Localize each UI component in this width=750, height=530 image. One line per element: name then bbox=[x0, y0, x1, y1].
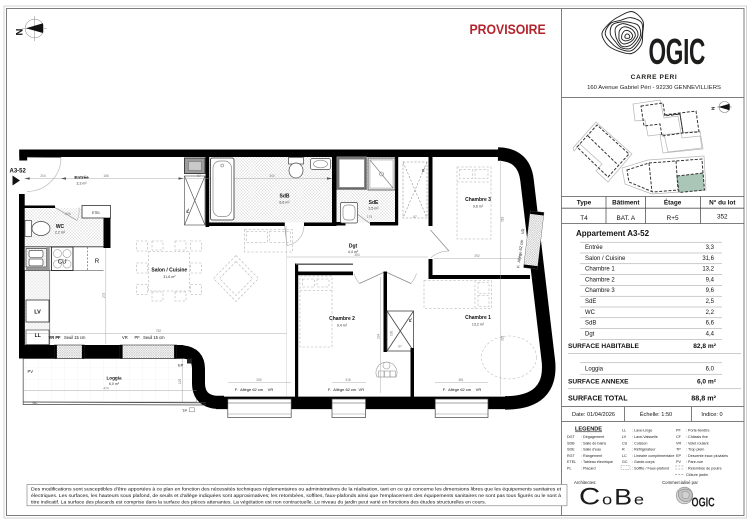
svg-text:F. Allège 62 cm VR: F. Allège 62 cm VR bbox=[235, 387, 274, 392]
svg-text:Type: Type bbox=[577, 200, 592, 207]
svg-text:PV: PV bbox=[28, 369, 34, 374]
svg-text:SDB: SDB bbox=[567, 441, 575, 445]
svg-text:CoBe: CoBe bbox=[579, 484, 646, 511]
svg-text:Chambre 2: Chambre 2 bbox=[585, 277, 615, 283]
svg-text:R+5: R+5 bbox=[667, 215, 679, 222]
svg-text:6,6 m²: 6,6 m² bbox=[279, 201, 290, 205]
svg-text:F. Allège 62 cm VR: F. Allège 62 cm VR bbox=[328, 387, 364, 392]
svg-text:381: 381 bbox=[458, 378, 464, 382]
svg-text:Loggia: Loggia bbox=[106, 376, 122, 381]
svg-text:F. Allège 62 cm VR: F. Allège 62 cm VR bbox=[443, 387, 482, 392]
svg-text:: Rangement: : Rangement bbox=[581, 454, 602, 458]
svg-text:4,4: 4,4 bbox=[706, 331, 715, 337]
svg-text:2,2 m²: 2,2 m² bbox=[55, 231, 66, 235]
svg-text:: Retombée de poutre: : Retombée de poutre bbox=[686, 467, 722, 471]
svg-text:LL: LL bbox=[35, 333, 41, 339]
svg-text:474: 474 bbox=[103, 386, 109, 390]
svg-text:100: 100 bbox=[390, 330, 394, 336]
svg-text:125: 125 bbox=[178, 378, 182, 384]
svg-text:LC: LC bbox=[622, 454, 627, 458]
svg-text:: Lave-Vaisselle: : Lave-Vaisselle bbox=[632, 435, 658, 439]
svg-text:WC: WC bbox=[585, 310, 596, 316]
svg-text:: Châssis fixe: : Châssis fixe bbox=[686, 435, 708, 439]
svg-text:: Pare-vue: : Pare-vue bbox=[686, 460, 703, 464]
svg-text:300: 300 bbox=[269, 174, 275, 178]
svg-text:VR PF Seuil 15 cm: VR PF Seuil 15 cm bbox=[122, 335, 165, 340]
svg-text:R: R bbox=[95, 258, 100, 265]
svg-text:Loggia: Loggia bbox=[585, 367, 604, 373]
svg-text:: Réfrigérateur: : Réfrigérateur bbox=[632, 448, 656, 452]
svg-text:PROVISOIRE: PROVISOIRE bbox=[470, 22, 546, 37]
svg-text:: Porte-fenêtre: : Porte-fenêtre bbox=[686, 429, 710, 433]
svg-text:titre indicatif. La surface de: titre indicatif. La surface des placards… bbox=[31, 500, 486, 506]
svg-text:PF: PF bbox=[676, 429, 681, 433]
svg-text:: Soffite / Faux-plafond: : Soffite / Faux-plafond bbox=[632, 467, 669, 471]
svg-text:RGT: RGT bbox=[567, 454, 576, 458]
svg-text:6,6: 6,6 bbox=[706, 321, 715, 327]
svg-text:352: 352 bbox=[717, 213, 728, 220]
svg-text:A3-52: A3-52 bbox=[10, 169, 27, 175]
svg-text:6,0: 6,0 bbox=[706, 367, 715, 373]
svg-text:Date: 01/04/2026: Date: 01/04/2026 bbox=[572, 412, 615, 418]
svg-text:3,3 m²: 3,3 m² bbox=[76, 182, 87, 186]
svg-text:67: 67 bbox=[197, 174, 201, 178]
svg-text:160 Avenue Gabriel Péri - 9223: 160 Avenue Gabriel Péri - 92230 GENNEVIL… bbox=[587, 85, 721, 91]
svg-text:BAT. A: BAT. A bbox=[616, 215, 635, 222]
svg-text:VR: VR bbox=[676, 441, 681, 445]
svg-text:9,6 m²: 9,6 m² bbox=[473, 205, 484, 209]
svg-text:: Tableau électrique: : Tableau électrique bbox=[581, 460, 613, 464]
svg-text:88,8 m²: 88,8 m² bbox=[691, 394, 716, 403]
svg-text:Chambre 1: Chambre 1 bbox=[465, 315, 491, 321]
svg-text:13,2: 13,2 bbox=[702, 267, 714, 273]
svg-text:Appartement A3-52: Appartement A3-52 bbox=[576, 229, 650, 238]
svg-text:PL: PL bbox=[409, 318, 413, 322]
svg-text:: Descente eaux pluviales: : Descente eaux pluviales bbox=[686, 454, 728, 458]
svg-text:SURFACE HABITABLE: SURFACE HABITABLE bbox=[568, 343, 640, 350]
svg-text:166: 166 bbox=[103, 174, 109, 178]
svg-text:Salon / Cuisine: Salon / Cuisine bbox=[585, 256, 626, 262]
svg-text:PV: PV bbox=[676, 460, 681, 464]
svg-text:Chambre 3: Chambre 3 bbox=[585, 288, 615, 294]
svg-text:9,4: 9,4 bbox=[706, 277, 715, 283]
svg-text:: Salle de bains: : Salle de bains bbox=[581, 441, 606, 445]
svg-text:175: 175 bbox=[367, 215, 373, 219]
svg-text:OGIC: OGIC bbox=[692, 496, 715, 510]
svg-text:318: 318 bbox=[501, 216, 505, 222]
svg-text:2,5: 2,5 bbox=[706, 299, 715, 305]
svg-text:PL: PL bbox=[567, 467, 572, 471]
svg-text:SDE: SDE bbox=[567, 448, 575, 452]
svg-text:: Dégagement: : Dégagement bbox=[581, 435, 604, 439]
svg-text:Entrée: Entrée bbox=[74, 175, 89, 180]
svg-text:328: 328 bbox=[501, 335, 505, 341]
svg-text:T4: T4 bbox=[580, 215, 588, 222]
svg-text:250: 250 bbox=[256, 378, 262, 382]
svg-text:N: N bbox=[711, 107, 716, 110]
svg-text:31,6: 31,6 bbox=[702, 256, 714, 262]
svg-text:N: N bbox=[15, 29, 26, 36]
svg-text:13,2 m²: 13,2 m² bbox=[472, 323, 485, 327]
svg-text:Dgt: Dgt bbox=[349, 244, 358, 250]
svg-text:PL: PL bbox=[186, 208, 190, 213]
svg-text:CU: CU bbox=[622, 441, 628, 445]
svg-text:VR PF Seuil 15 cm: VR PF Seuil 15 cm bbox=[49, 335, 86, 340]
svg-text:SdE: SdE bbox=[585, 299, 596, 305]
svg-text:WC: WC bbox=[56, 224, 65, 230]
svg-text:Commercialisé par: Commercialisé par bbox=[662, 480, 698, 485]
svg-text:SURFACE TOTAL: SURFACE TOTAL bbox=[568, 394, 628, 403]
svg-text:CF: CF bbox=[676, 435, 682, 439]
svg-text:82,8 m²: 82,8 m² bbox=[693, 343, 717, 350]
svg-text:GC: GC bbox=[33, 401, 39, 405]
svg-text:TP: TP bbox=[182, 408, 187, 413]
svg-text:LV: LV bbox=[622, 435, 627, 439]
svg-text:: Garde-corps: : Garde-corps bbox=[632, 460, 655, 464]
svg-text:67: 67 bbox=[398, 345, 402, 349]
svg-text:Entrée: Entrée bbox=[585, 245, 603, 251]
svg-text:67: 67 bbox=[413, 215, 417, 219]
svg-text:204: 204 bbox=[40, 174, 46, 178]
svg-text:LEGENDE: LEGENDE bbox=[575, 427, 602, 433]
svg-text:R: R bbox=[622, 448, 625, 452]
svg-text:Étage: Étage bbox=[664, 198, 682, 207]
svg-text:318: 318 bbox=[345, 378, 351, 382]
svg-text:Chambre 2: Chambre 2 bbox=[329, 316, 355, 322]
svg-text:752: 752 bbox=[156, 329, 162, 333]
svg-text:SURFACE ANNEXE: SURFACE ANNEXE bbox=[568, 379, 629, 386]
svg-text:LV: LV bbox=[34, 310, 41, 316]
svg-text:: Cuisson: : Cuisson bbox=[632, 441, 647, 445]
svg-text:: Placard: : Placard bbox=[581, 467, 596, 471]
svg-text:SdE: SdE bbox=[369, 200, 379, 206]
svg-text:Bâtiment: Bâtiment bbox=[612, 200, 640, 207]
svg-text:Chambre 1: Chambre 1 bbox=[585, 267, 615, 273]
svg-text:6,0 m²: 6,0 m² bbox=[109, 382, 120, 386]
svg-text:273: 273 bbox=[102, 292, 106, 298]
svg-text:292: 292 bbox=[474, 254, 480, 258]
svg-text:Salon / Cuisine: Salon / Cuisine bbox=[151, 268, 187, 274]
svg-text:N° du lot: N° du lot bbox=[709, 199, 736, 207]
svg-text:9,4 m²: 9,4 m² bbox=[337, 324, 348, 328]
svg-text:LL: LL bbox=[622, 429, 626, 433]
svg-text:2,5 m²: 2,5 m² bbox=[368, 207, 379, 211]
svg-text:SdB: SdB bbox=[585, 321, 596, 327]
svg-text:EP: EP bbox=[178, 363, 184, 368]
svg-text:206: 206 bbox=[65, 212, 71, 216]
svg-text:2,2: 2,2 bbox=[706, 310, 715, 316]
svg-text:OGIC: OGIC bbox=[649, 33, 706, 73]
svg-text:: Trop plein: : Trop plein bbox=[686, 448, 704, 452]
svg-text:3,3: 3,3 bbox=[706, 245, 715, 251]
svg-text:ETEL: ETEL bbox=[567, 460, 576, 464]
svg-text:CU: CU bbox=[58, 259, 67, 266]
svg-text:Clôture jardin: Clôture jardin bbox=[686, 473, 708, 477]
svg-text:ETEL: ETEL bbox=[92, 211, 101, 215]
svg-text:Échelle: 1:50: Échelle: 1:50 bbox=[640, 411, 672, 418]
svg-text:CARRE PERI: CARRE PERI bbox=[631, 74, 678, 81]
svg-text:Indice: 0: Indice: 0 bbox=[701, 412, 722, 418]
svg-text:6,0 m²: 6,0 m² bbox=[697, 379, 717, 386]
svg-text:PL: PL bbox=[422, 168, 426, 172]
svg-text:9,6: 9,6 bbox=[706, 288, 715, 294]
svg-text:354: 354 bbox=[354, 253, 360, 257]
svg-text:Chambre 3: Chambre 3 bbox=[465, 197, 491, 203]
svg-text:294: 294 bbox=[377, 333, 381, 339]
svg-text:: Salle d'eau: : Salle d'eau bbox=[581, 448, 601, 452]
svg-text:TP: TP bbox=[676, 448, 681, 452]
svg-text:: Linéaire complémentaire: : Linéaire complémentaire bbox=[632, 454, 674, 458]
svg-text:: Volet roulant: : Volet roulant bbox=[686, 441, 709, 445]
svg-text:Des modifications sont suscept: Des modifications sont susceptibles d'êt… bbox=[31, 487, 562, 493]
svg-text:électriques. Les surfaces, les: électriques. Les surfaces, les hauteurs … bbox=[31, 493, 561, 499]
svg-text:GC: GC bbox=[622, 460, 628, 464]
svg-text:Dgt: Dgt bbox=[585, 331, 595, 337]
svg-text:SdB: SdB bbox=[280, 194, 290, 200]
svg-text:: Lave-Linge: : Lave-Linge bbox=[632, 429, 652, 433]
svg-text:31,6 m²: 31,6 m² bbox=[163, 275, 176, 279]
svg-text:DGT: DGT bbox=[567, 435, 576, 439]
svg-text:EP: EP bbox=[676, 454, 681, 458]
